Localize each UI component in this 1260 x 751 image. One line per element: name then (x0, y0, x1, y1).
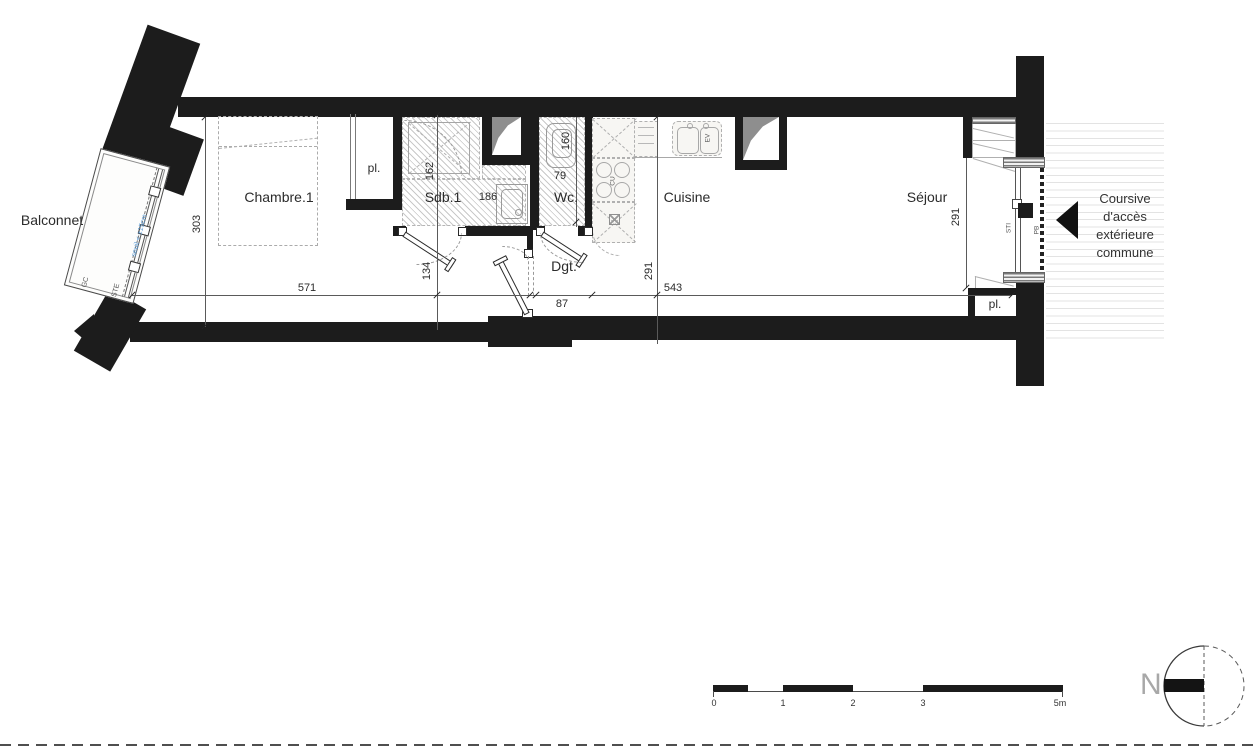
scale-end-tick-right (1062, 691, 1063, 697)
wall-closet-divider (393, 114, 402, 210)
room-label-sdb: Sdb.1 (425, 189, 462, 205)
wall-pl-right-left (968, 288, 975, 318)
dim-543: 543 (664, 282, 682, 294)
kitchen-window (735, 112, 787, 170)
dim-line-303 (205, 117, 206, 327)
entry-door-dashed-2 (533, 256, 534, 296)
dim-line-291-cuisine (657, 117, 658, 344)
room-label-sejour: Séjour (907, 189, 947, 205)
wall-bottom-step (488, 340, 572, 347)
dim-87: 87 (556, 298, 568, 310)
washing-machine-knob (515, 209, 522, 216)
kitchen-window-glass (743, 117, 779, 160)
kitchen-fridge (634, 121, 658, 157)
kitchen-entry-arc (592, 230, 620, 256)
hob-cu-label: CU (610, 176, 617, 185)
coursive-line-1: Coursive (1075, 190, 1175, 208)
bed (218, 116, 318, 246)
kitchen-re-box (609, 214, 620, 225)
dim-162: 162 (424, 162, 436, 180)
page-bottom-dashed-line (0, 744, 1260, 746)
scale-tick-1: 1 (780, 698, 785, 708)
floor-plan: GC STE seuil < ±15cm CU (0, 0, 1260, 751)
sdb-window-glass (492, 117, 521, 155)
room-label-cuisine: Cuisine (664, 189, 711, 205)
wall-right-column-bottom (1016, 283, 1044, 386)
entry-threshold-top (1003, 157, 1045, 168)
sdb-window (482, 112, 530, 165)
kitchen-counter-edge (634, 157, 722, 158)
room-label-chambre: Chambre.1 (244, 189, 313, 205)
scale-end-tick-left (713, 691, 714, 697)
entry-threshold-bottom (1003, 272, 1045, 283)
dim-186: 186 (479, 191, 497, 203)
wall-entry-top-strip (963, 114, 972, 158)
entry-door-frame (1015, 168, 1021, 272)
scale-segment-3 (923, 685, 1063, 692)
wall-angled-bottom-tip (74, 314, 94, 348)
wall-sdb-wc-divider (530, 113, 539, 230)
sdb-window-strip (482, 165, 526, 179)
kitchen-window-shade (743, 117, 779, 160)
scale-tick-3: 3 (920, 698, 925, 708)
wall-bottom-left (130, 322, 488, 342)
scale-tick-5m: 5m (1054, 698, 1067, 708)
room-label-pl-right: pl. (989, 297, 1002, 311)
room-label-dgt: Dgt. (551, 258, 577, 274)
dim-line-horizontal-main (132, 295, 1012, 296)
dim-line-162-134 (437, 115, 438, 330)
kitchen-fridge-shelves (638, 127, 654, 151)
dim-303: 303 (191, 215, 203, 233)
dim-line-291-sejour (966, 158, 967, 288)
dim-134: 134 (421, 262, 433, 280)
entry-pb-label: PB (1034, 226, 1041, 235)
wall-sdb-bottom (465, 226, 530, 236)
dim-291-cuisine: 291 (643, 262, 655, 280)
scale-segment-2 (783, 685, 853, 692)
north-compass-icon (1161, 643, 1247, 729)
sink-ev-label: EV (705, 134, 712, 143)
washing-machine (496, 184, 528, 224)
coursive-line-2: d'accès (1075, 208, 1175, 226)
room-label-pl-left: pl. (368, 161, 381, 175)
north-label: N (1140, 668, 1162, 702)
scale-tick-2: 2 (850, 698, 855, 708)
kitchen-sink-unit (672, 121, 722, 156)
chambre-door-cap (444, 257, 456, 272)
entry-door-leaf (496, 257, 529, 315)
coursive-line-4: commune (1075, 244, 1175, 262)
sdb-window-shade (492, 117, 521, 155)
pl-right-swing-stub (975, 276, 976, 288)
dim-291-sejour: 291 (950, 208, 962, 226)
wall-closet-bottom (346, 199, 402, 210)
dim-line-160 (576, 117, 577, 227)
coursive-label: Coursive d'accès extérieure commune (1075, 190, 1175, 262)
closet-left-door-track (350, 114, 356, 199)
wall-right-column-top (1016, 56, 1044, 157)
coursive-line-3: extérieure (1075, 226, 1175, 244)
wall-pl-right-top (968, 288, 1016, 295)
entry-sti-label: STI (1006, 223, 1013, 233)
sink-basin-left (677, 127, 699, 154)
entry-outer-door-dashed (1040, 168, 1044, 272)
wc-door-post-right (584, 227, 593, 236)
room-label-balconnet: Balconnet (21, 212, 83, 228)
room-label-wc: Wc. (554, 189, 578, 205)
scale-segment-1 (713, 685, 748, 692)
entry-closet-shelf-band (972, 117, 1016, 124)
entry-door-dashed-1 (528, 256, 529, 296)
entry-closet-midline (972, 140, 1016, 141)
dim-79: 79 (554, 170, 566, 182)
sink-tap-right (703, 123, 709, 129)
entry-door-handle (1018, 203, 1033, 218)
wall-bottom-right (488, 316, 1016, 340)
sink-tap-left (687, 123, 693, 129)
dim-160: 160 (560, 132, 572, 150)
wall-top (178, 97, 1016, 117)
dim-571: 571 (298, 282, 316, 294)
scale-tick-0: 0 (711, 698, 716, 708)
